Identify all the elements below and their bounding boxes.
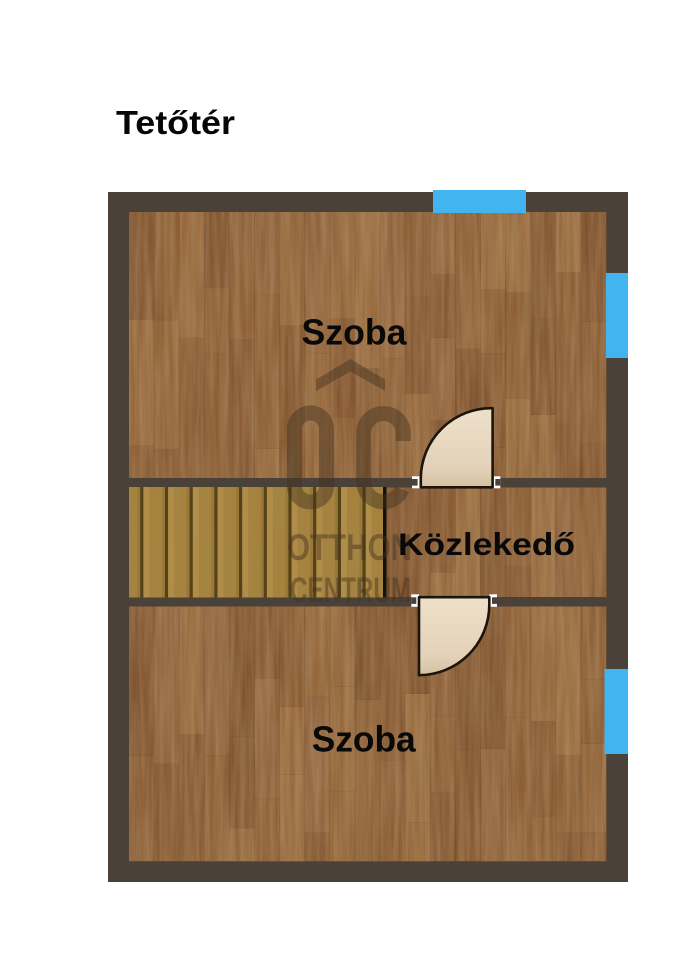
svg-text:CENTRUM: CENTRUM (290, 570, 411, 610)
svg-text:Tetőtér: Tetőtér (116, 104, 235, 141)
svg-text:Szoba: Szoba (312, 718, 417, 759)
svg-text:OTTHON: OTTHON (287, 527, 412, 568)
svg-text:Szoba: Szoba (302, 311, 408, 352)
svg-text:Közlekedő: Közlekedő (398, 526, 575, 562)
